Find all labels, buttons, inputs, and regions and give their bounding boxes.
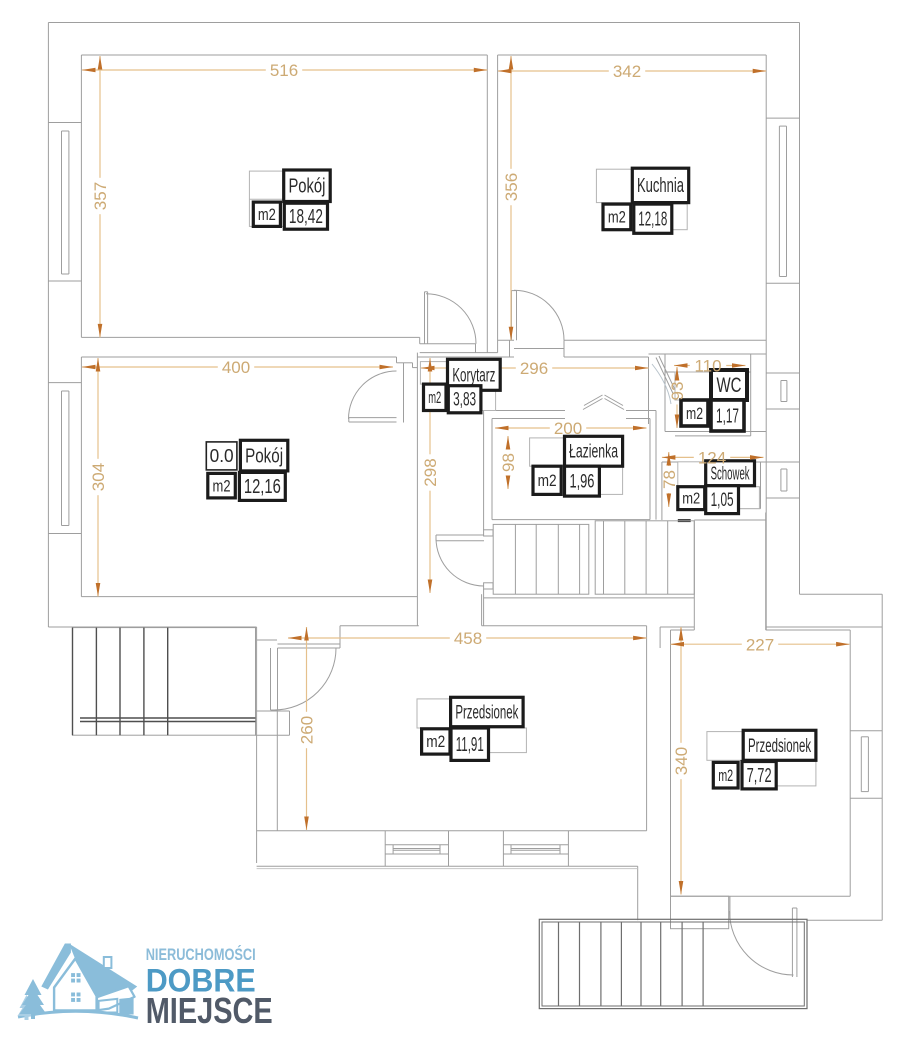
svg-text:1,17: 1,17 [716,405,739,427]
svg-text:0.0: 0.0 [210,446,234,466]
svg-text:124: 124 [698,449,726,468]
svg-text:m2: m2 [718,766,733,785]
svg-text:200: 200 [554,419,582,438]
svg-text:Przedsionek: Przedsionek [455,702,518,723]
svg-text:m2: m2 [426,732,445,751]
svg-text:Pokój: Pokój [288,176,325,198]
svg-text:WC: WC [717,374,742,397]
svg-text:m2: m2 [213,476,231,495]
svg-text:298: 298 [421,458,440,486]
svg-text:m2: m2 [608,208,626,227]
svg-text:458: 458 [454,629,482,648]
svg-text:340: 340 [672,747,691,775]
svg-text:m2: m2 [428,388,441,407]
svg-text:Pokój: Pokój [245,445,283,467]
svg-text:98: 98 [499,453,518,472]
svg-text:110: 110 [694,357,721,376]
svg-text:78: 78 [660,470,679,489]
svg-text:356: 356 [502,173,521,201]
svg-text:357: 357 [91,182,110,210]
svg-text:1,05: 1,05 [711,490,734,511]
svg-text:NIERUCHOMOŚCI: NIERUCHOMOŚCI [146,945,256,964]
svg-text:MIEJSCE: MIEJSCE [146,990,273,1031]
svg-text:Łazienka: Łazienka [569,442,618,463]
svg-text:11,91: 11,91 [456,734,484,756]
svg-text:m2: m2 [682,491,700,508]
svg-text:m2: m2 [258,205,276,224]
svg-text:Kuchnia: Kuchnia [637,175,685,197]
svg-text:342: 342 [613,62,641,81]
svg-text:93: 93 [668,382,687,401]
svg-text:18,42: 18,42 [289,206,323,228]
svg-text:3,83: 3,83 [453,390,476,411]
svg-text:7,72: 7,72 [747,765,772,787]
svg-text:227: 227 [746,635,774,654]
svg-text:m2: m2 [538,471,557,490]
svg-text:304: 304 [89,463,108,491]
svg-text:12,18: 12,18 [638,209,667,231]
svg-text:m2: m2 [686,404,703,423]
svg-text:296: 296 [520,359,548,378]
svg-text:Korytarz: Korytarz [452,365,495,386]
svg-text:260: 260 [298,716,317,744]
svg-text:Przedsionek: Przedsionek [748,736,811,757]
svg-text:12,16: 12,16 [244,476,281,498]
svg-text:400: 400 [222,358,250,377]
svg-text:1,96: 1,96 [569,472,594,493]
svg-text:516: 516 [270,61,298,80]
